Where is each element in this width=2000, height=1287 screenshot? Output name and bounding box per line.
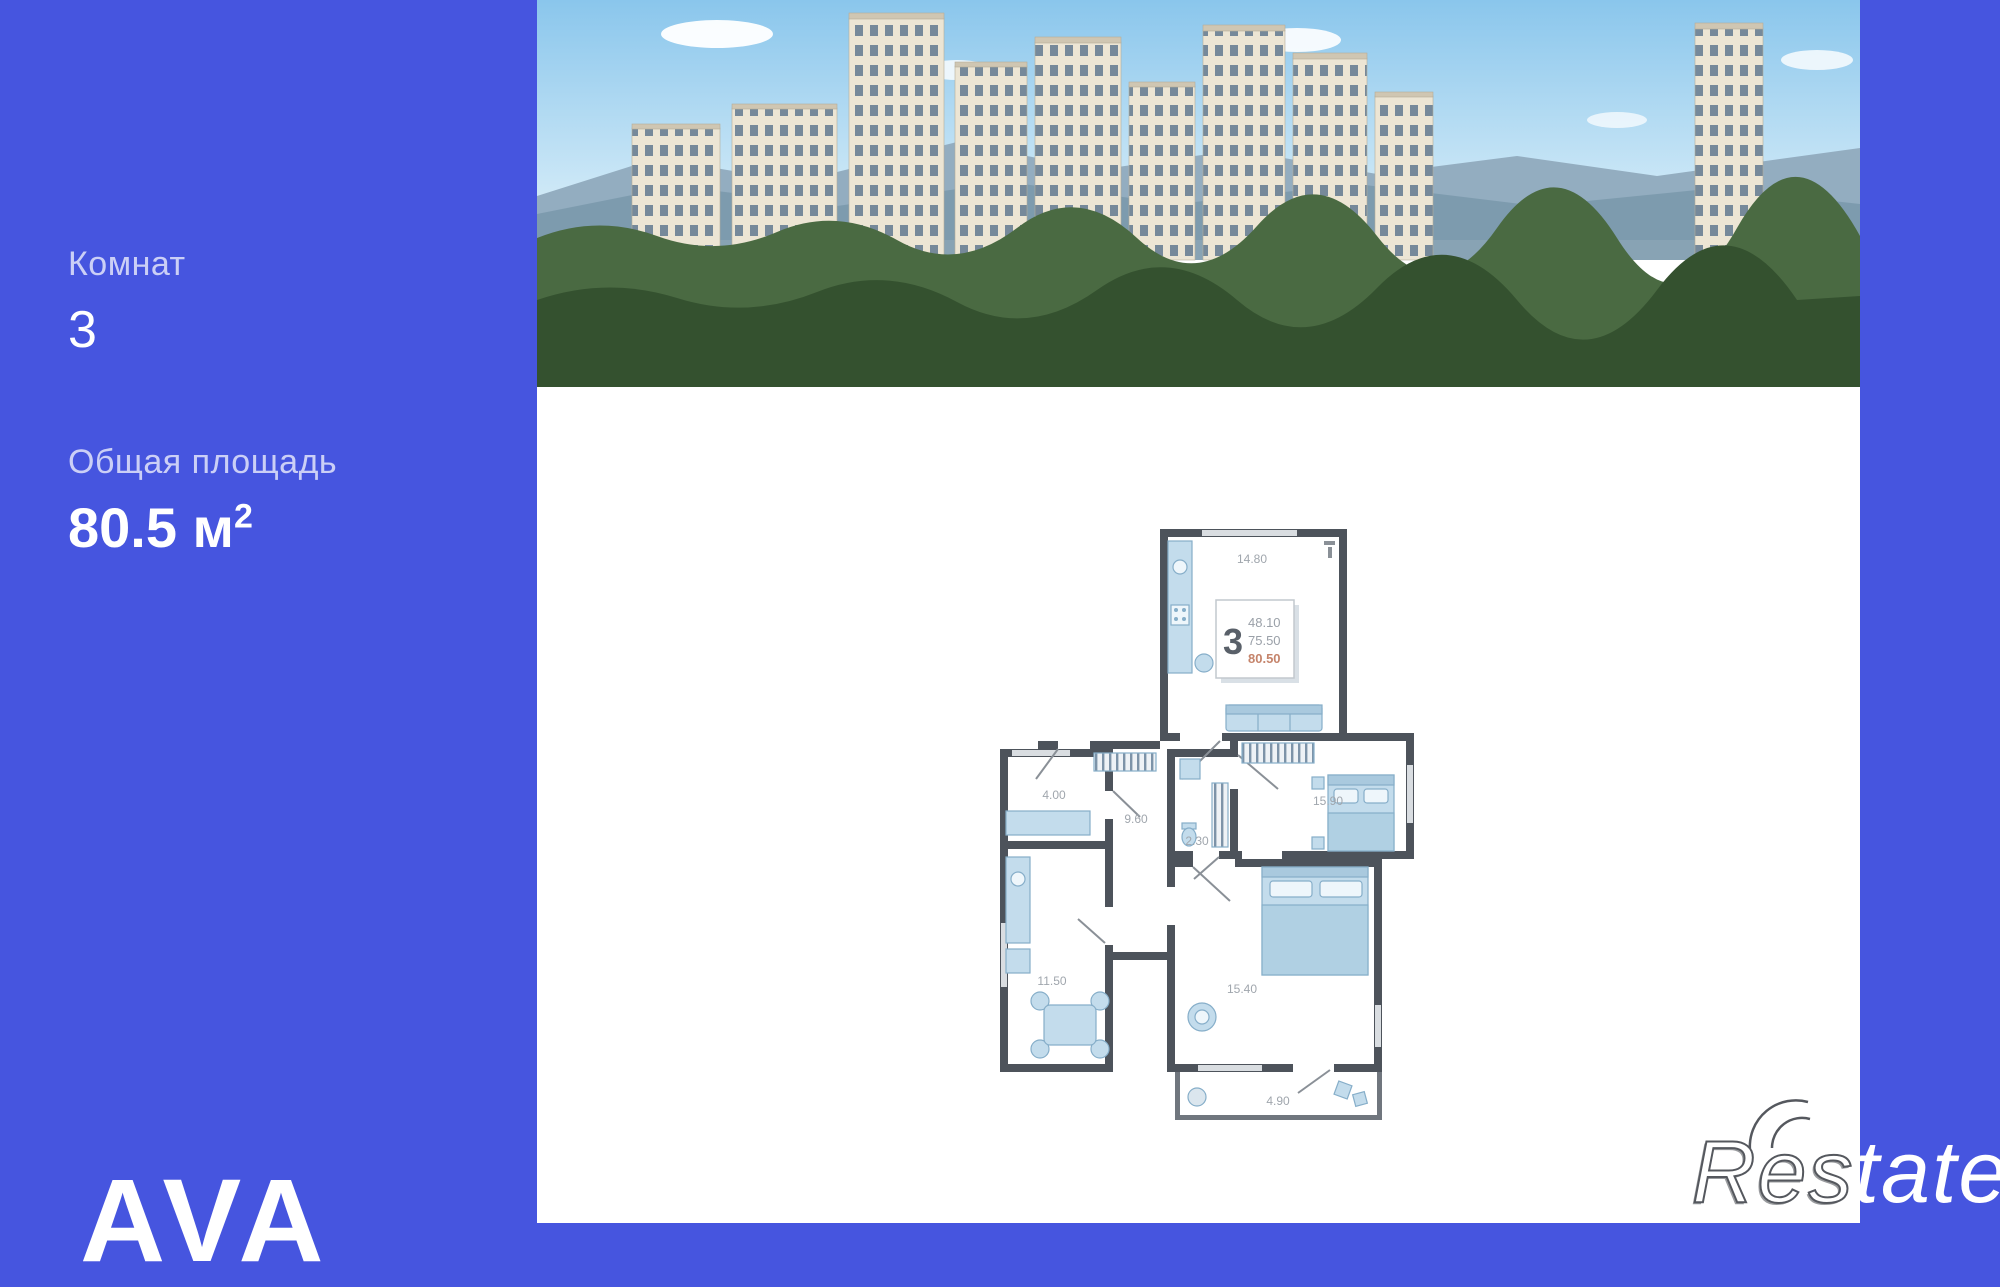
nightstand xyxy=(1312,837,1324,849)
room-area-kitchen-living: 14.80 xyxy=(1237,552,1267,566)
content-panel: 3 48.10 75.50 80.50 14.80 9.60 2.30 4.00… xyxy=(537,0,1860,1223)
listing-card: { "sidebar": { "rooms_label": "Комнат", … xyxy=(0,0,2000,1223)
plant xyxy=(1188,1088,1206,1106)
bed-bottom xyxy=(1262,867,1368,975)
square-meter-sup: 2 xyxy=(234,497,253,535)
stamp-total-area: 80.50 xyxy=(1248,651,1281,666)
ava-logo: AVA xyxy=(80,1162,330,1280)
side-table xyxy=(1195,654,1213,672)
room-area-wardrobe: 4.00 xyxy=(1042,788,1066,802)
rooms-value: 3 xyxy=(68,300,97,360)
room-area-kitchen: 11.50 xyxy=(1037,974,1066,988)
bench xyxy=(1006,811,1090,835)
total-area-label: Общая площадь xyxy=(68,443,337,482)
stamp-rooms: 3 xyxy=(1223,621,1243,662)
watermark-solid-text: tate xyxy=(1855,1122,2000,1221)
restate-watermark: Restate xyxy=(1692,1128,2000,1216)
apartment-stamp: 3 48.10 75.50 80.50 xyxy=(1216,600,1299,683)
room-area-bedroom-bottom: 15.40 xyxy=(1227,982,1257,996)
room-area-bedroom-right: 15.90 xyxy=(1313,794,1343,808)
nightstand xyxy=(1312,777,1324,789)
shelving xyxy=(1212,783,1228,847)
stamp-area-no-balcony: 75.50 xyxy=(1248,633,1281,648)
floor-plan: 3 48.10 75.50 80.50 14.80 9.60 2.30 4.00… xyxy=(990,527,1430,1127)
washing-machine xyxy=(1180,759,1200,779)
wardrobe xyxy=(1242,743,1314,763)
kitchen-counters xyxy=(1006,857,1030,973)
room-area-bathroom: 2.30 xyxy=(1185,834,1209,848)
kitchen-counter xyxy=(1168,541,1192,673)
armchair xyxy=(1188,1003,1216,1031)
room-area-balcony: 4.90 xyxy=(1266,1094,1290,1108)
watermark-outline-text: Res xyxy=(1692,1122,1855,1221)
building-photo xyxy=(537,0,1860,387)
sofa xyxy=(1226,705,1322,731)
hall-wardrobe xyxy=(1094,753,1156,771)
plant xyxy=(1334,1081,1352,1099)
room-area-hallway: 9.60 xyxy=(1124,812,1148,826)
plant xyxy=(1353,1092,1368,1107)
dining-table xyxy=(1031,992,1109,1058)
total-area-value: 80.5 м2 xyxy=(68,495,253,560)
stamp-living-area: 48.10 xyxy=(1248,615,1281,630)
rooms-label: Комнат xyxy=(68,245,186,284)
bed-right xyxy=(1328,775,1394,851)
furniture xyxy=(1006,541,1394,1106)
vent-icon xyxy=(1324,541,1335,558)
